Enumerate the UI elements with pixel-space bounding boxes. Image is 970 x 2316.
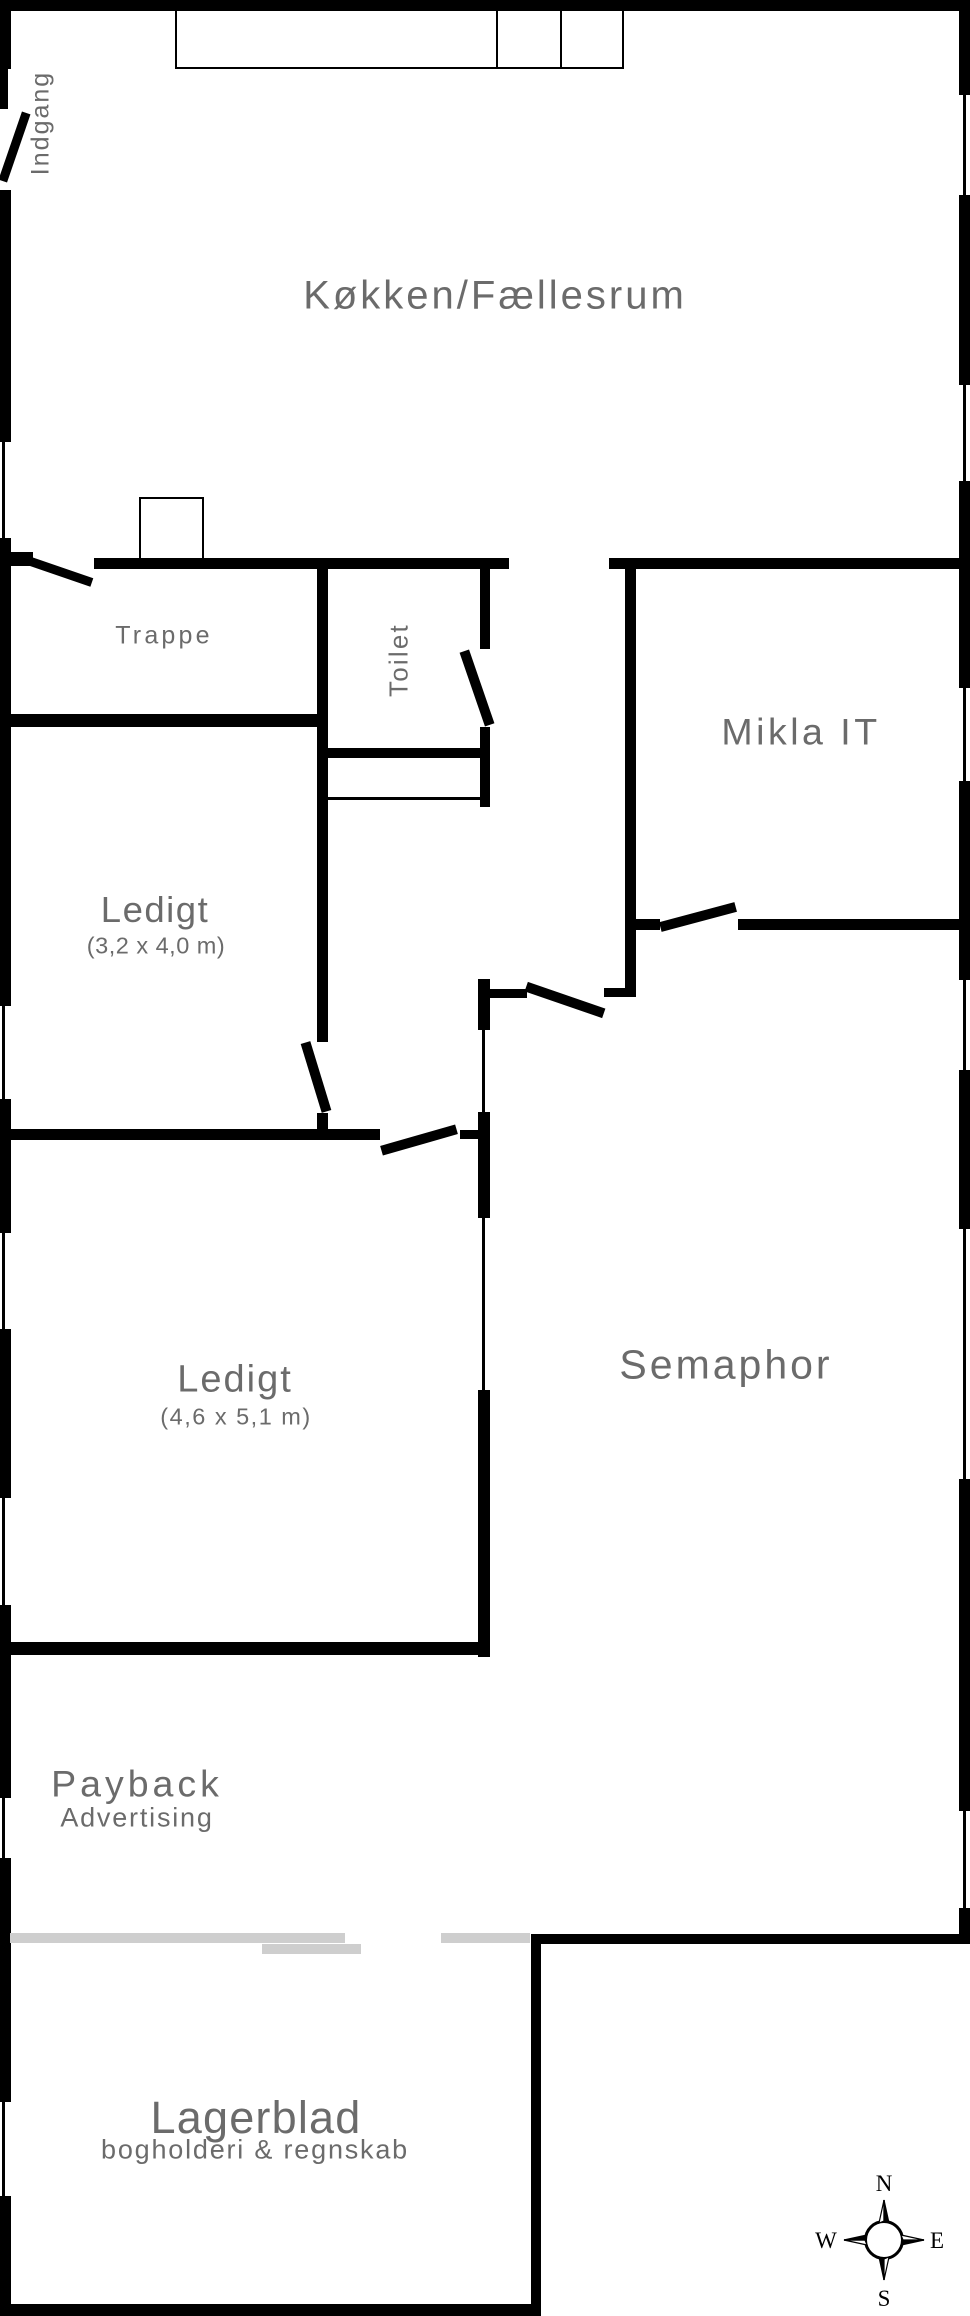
svg-text:S: S — [878, 2286, 891, 2311]
svg-text:W: W — [815, 2228, 837, 2253]
svg-text:E: E — [930, 2228, 944, 2253]
svg-text:N: N — [876, 2171, 893, 2196]
